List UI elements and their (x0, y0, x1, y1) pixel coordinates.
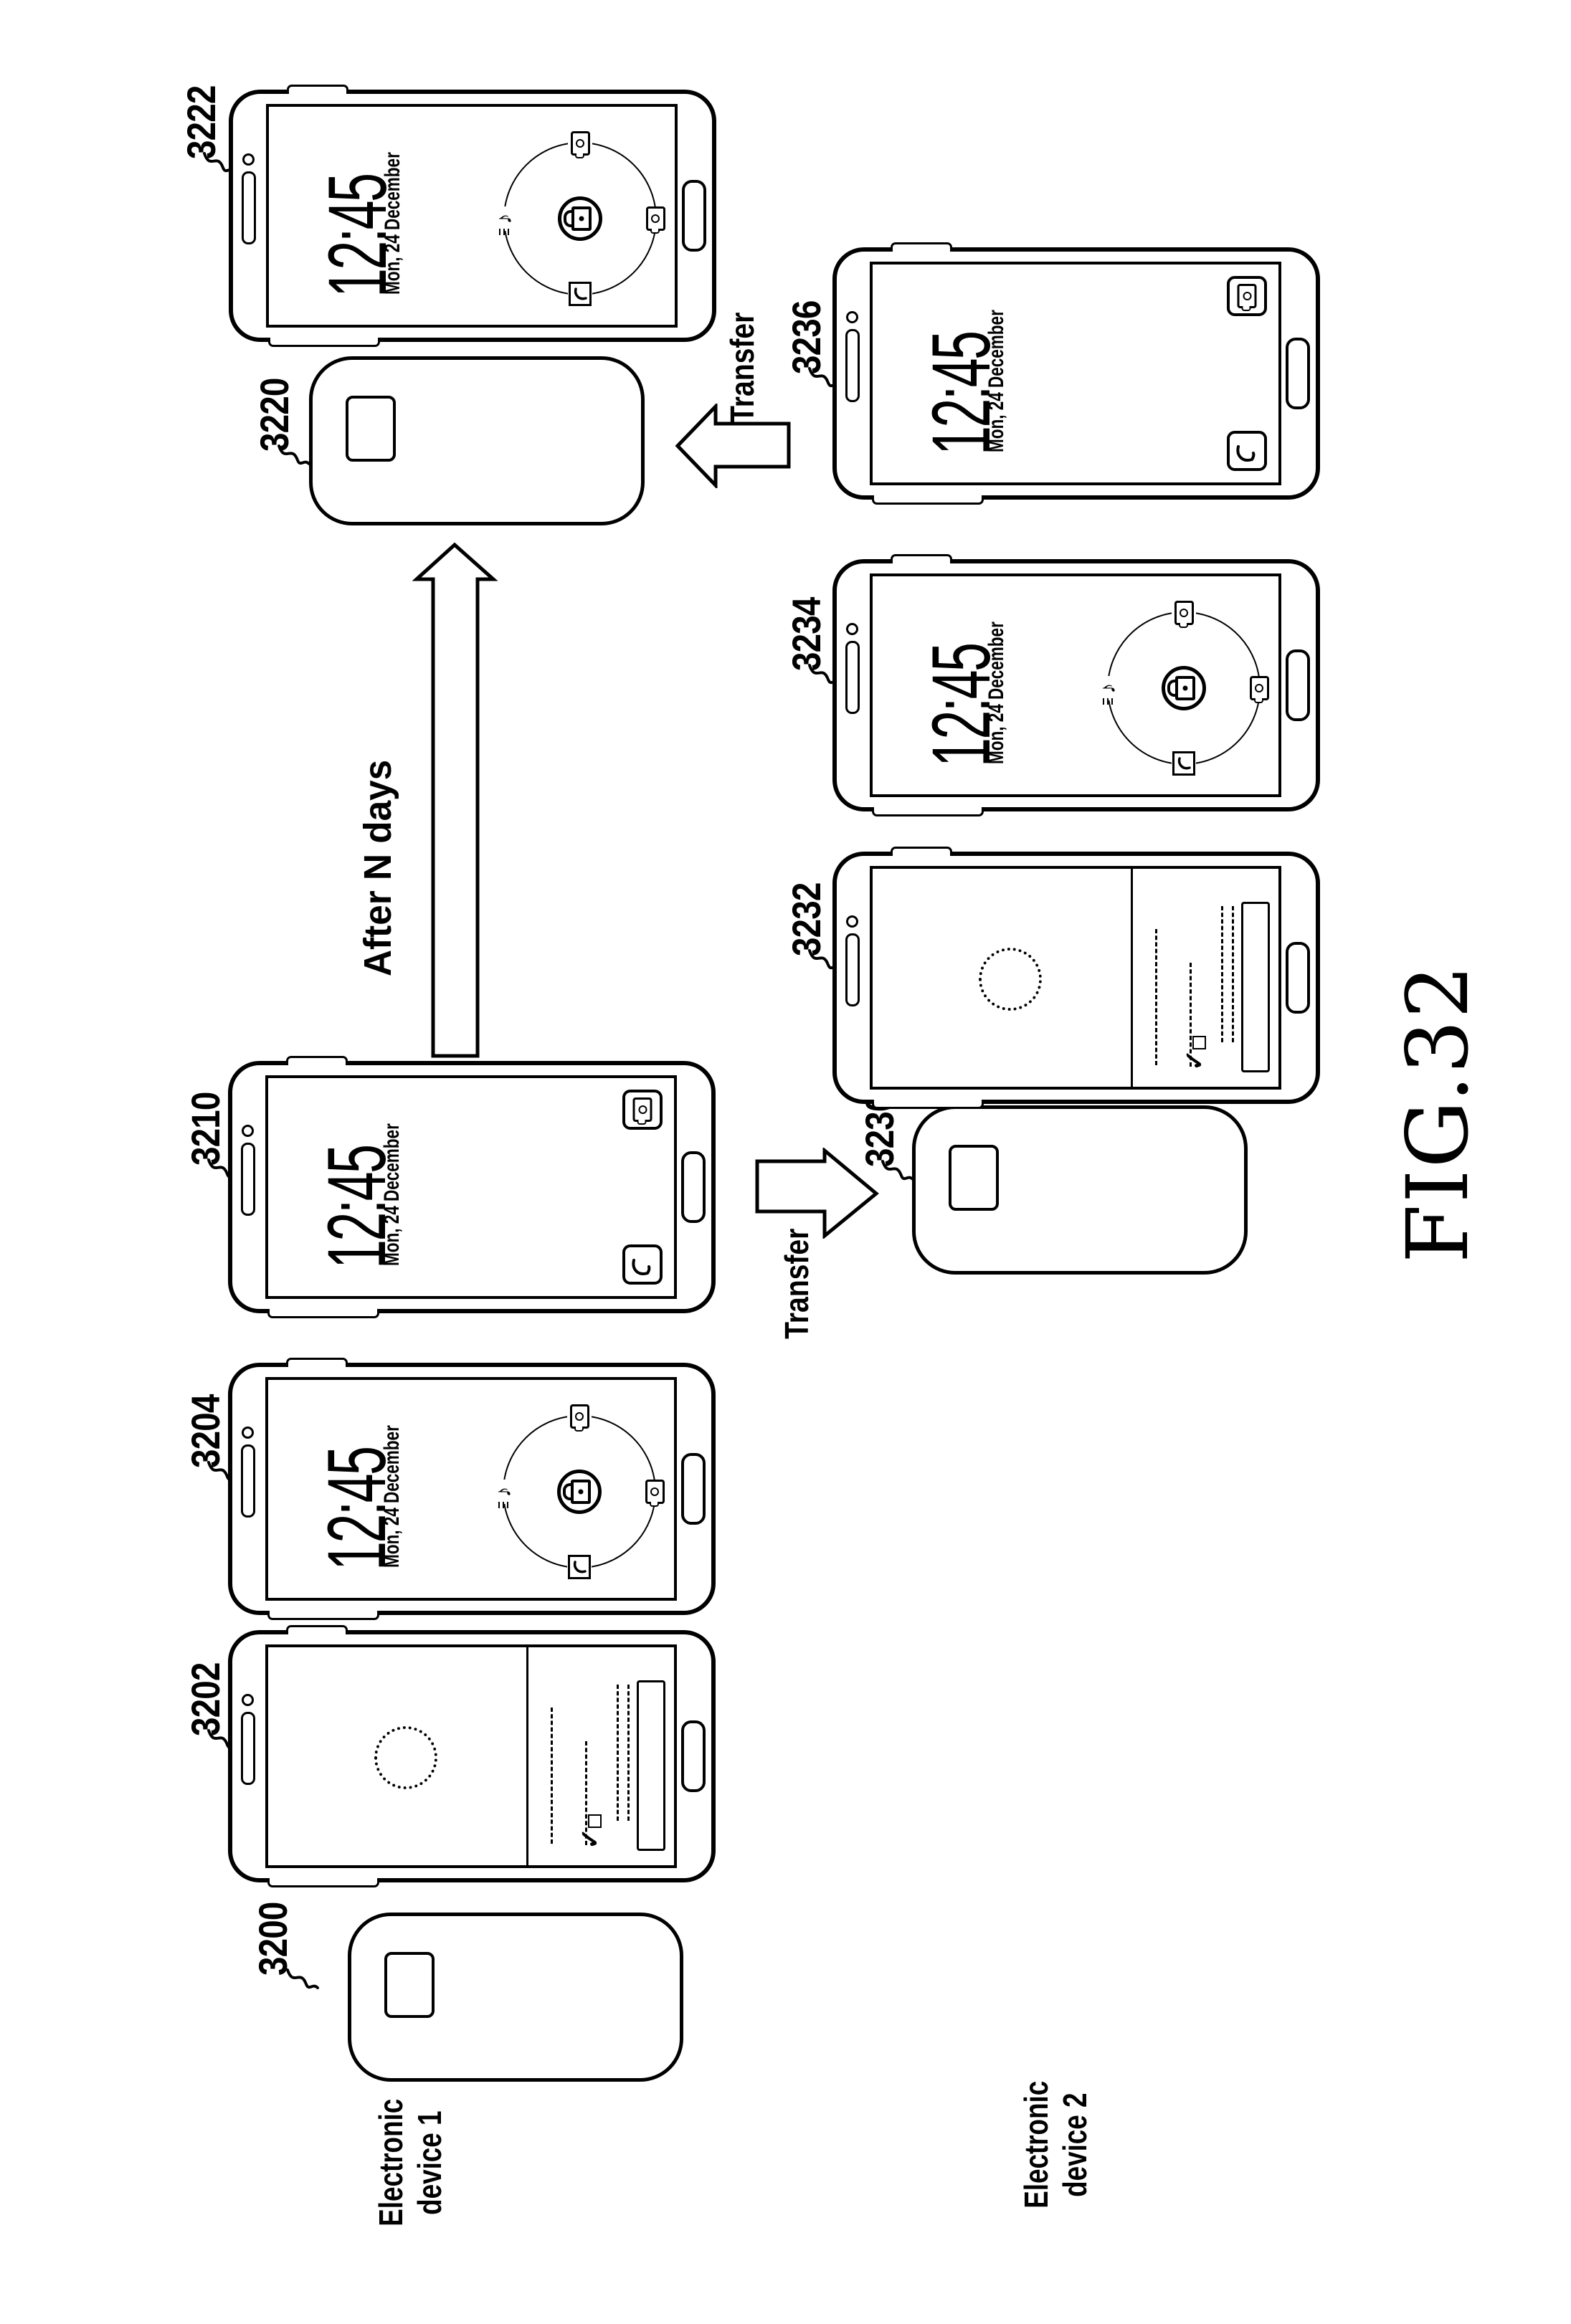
text-placeholder-line (1232, 906, 1234, 1042)
ref-label-3234: 3234 (783, 584, 830, 671)
volume-button (267, 1309, 379, 1318)
camera-shortcut-icon (622, 1090, 663, 1130)
ref-label-3202: 3202 (182, 1649, 229, 1736)
phone-shortcut-icon (1227, 431, 1267, 471)
power-button (286, 1056, 348, 1065)
unlock-circle: ♪ (503, 1415, 656, 1568)
volume-button (872, 807, 984, 816)
lock-icon (558, 196, 602, 241)
wearable-device-3200 (348, 1913, 683, 2082)
keyhole (1183, 686, 1188, 691)
wearable-device-3230 (912, 1105, 1248, 1275)
front-camera (846, 623, 858, 635)
front-camera (242, 1427, 254, 1439)
wearable-device-3220 (309, 356, 645, 525)
wearable-screen (949, 1145, 999, 1211)
camera-shortcut-icon (567, 1404, 592, 1429)
power-button (286, 1358, 348, 1367)
volume-button (872, 495, 984, 505)
clock-date: Mon, 24 December (380, 1425, 404, 1568)
lock-screen: 12:45 Mon, 24 December ♪ (870, 573, 1281, 797)
phone-3236: 12:45 Mon, 24 December (832, 247, 1320, 500)
keyhole (579, 216, 584, 222)
front-camera (242, 1694, 254, 1706)
volume-button (872, 1100, 984, 1109)
confirm-button (1241, 902, 1270, 1072)
music-shortcut-icon: ♪ (492, 1480, 516, 1504)
front-camera (242, 153, 255, 166)
volume-button (268, 338, 380, 347)
phone-3222: 12:45 Mon, 24 December ♪ (229, 90, 716, 342)
ref-label-3210: 3210 (182, 1079, 229, 1166)
figure-canvas: Electronic device 1 3200 3202 ✓ (0, 0, 1571, 2324)
phone-3204: 12:45 Mon, 24 December ♪ (228, 1363, 716, 1615)
setup-screen: ✓ (870, 866, 1281, 1090)
speaker-grille (845, 329, 860, 402)
leader-line-3230 (881, 1157, 915, 1183)
group-label-line2: device 2 (1055, 2092, 1094, 2196)
text-placeholder-line (617, 1685, 619, 1821)
phone-3202: ✓ (228, 1630, 716, 1882)
divider-line (526, 1647, 528, 1865)
clock-date: Mon, 24 December (984, 622, 1009, 764)
phone-3234: 12:45 Mon, 24 December ♪ (832, 559, 1320, 811)
group-label-line1: Electronic (1017, 2081, 1055, 2209)
wearable-screen (384, 1952, 435, 2018)
after-n-days-arrow (412, 540, 498, 1058)
home-button (682, 180, 706, 252)
front-camera (846, 915, 858, 928)
home-button (1286, 942, 1310, 1014)
speaker-grille (241, 1712, 255, 1785)
sound-waves (499, 229, 512, 235)
music-shortcut-icon: ♪ (493, 206, 517, 231)
phone-shortcut-icon (643, 206, 668, 231)
phone-shortcut-icon (622, 1244, 663, 1285)
after-n-days-label: After N days (356, 748, 400, 976)
message-shortcut-icon (1172, 751, 1196, 776)
wearable-screen (346, 396, 396, 462)
lock-body (571, 1480, 591, 1504)
home-button (681, 1720, 706, 1792)
phone-shortcut-icon (642, 1480, 667, 1504)
camera-shortcut-icon (1227, 276, 1267, 316)
group-label-device-1: Electronic device 1 (371, 2070, 449, 2256)
group-label-device-2: Electronic device 2 (1017, 2052, 1094, 2238)
speaker-grille (242, 171, 256, 244)
sound-waves (498, 1502, 511, 1508)
unlock-circle: ♪ (503, 142, 657, 295)
volume-button (267, 1878, 379, 1887)
message-shortcut-icon (567, 1555, 592, 1579)
divider-line (1131, 869, 1133, 1087)
setup-screen: ✓ (265, 1644, 677, 1868)
lock-screen: 12:45 Mon, 24 December ♪ (265, 1377, 677, 1601)
front-camera (846, 311, 858, 323)
text-placeholder-line (627, 1685, 630, 1821)
ref-label-3220: 3220 (251, 365, 298, 452)
keyhole (579, 1490, 584, 1495)
ref-label-3236: 3236 (783, 287, 830, 374)
power-button (891, 242, 952, 252)
loading-spinner (979, 948, 1042, 1011)
lock-body (571, 206, 592, 231)
speaker-grille (845, 641, 860, 714)
lock-icon (557, 1470, 602, 1514)
ref-label-3200: 3200 (250, 1889, 296, 1976)
power-button (891, 847, 952, 856)
text-placeholder-line (1155, 929, 1157, 1065)
home-button (1286, 649, 1310, 721)
phone-3232: ✓ (832, 852, 1320, 1104)
text-placeholder-line (551, 1708, 553, 1844)
speaker-grille (241, 1143, 255, 1216)
camera-shortcut-icon (1172, 601, 1196, 625)
checkbox (1192, 1036, 1206, 1049)
leader-line-3200 (285, 1966, 320, 1991)
checkmark: ✓ (1180, 1049, 1210, 1071)
text-placeholder-line (1221, 906, 1223, 1042)
home-button (681, 1453, 706, 1525)
ref-label-3232: 3232 (783, 870, 830, 956)
speaker-grille (845, 933, 860, 1006)
confirm-button (637, 1680, 665, 1851)
lock-screen: 12:45 Mon, 24 December (870, 262, 1281, 485)
sound-waves (1103, 698, 1116, 705)
phone-3210: 12:45 Mon, 24 December (228, 1061, 716, 1313)
message-shortcut-icon (568, 282, 592, 306)
home-button (1286, 338, 1310, 409)
lock-body (1175, 676, 1195, 700)
home-button (681, 1151, 706, 1223)
clock-date: Mon, 24 December (380, 1123, 404, 1266)
lock-icon (1162, 666, 1206, 710)
power-button (891, 554, 952, 563)
lock-screen: 12:45 Mon, 24 December (265, 1075, 677, 1299)
volume-button (267, 1611, 379, 1620)
group-label-line2: device 1 (410, 2110, 449, 2214)
checkbox (588, 1814, 602, 1828)
camera-shortcut-icon (568, 131, 592, 156)
loading-spinner (374, 1726, 437, 1789)
clock-date: Mon, 24 December (381, 152, 405, 295)
unlock-circle: ♪ (1107, 611, 1261, 765)
phone-shortcut-icon (1247, 676, 1271, 700)
music-shortcut-icon: ♪ (1096, 676, 1121, 700)
ref-label-3204: 3204 (182, 1381, 229, 1468)
lock-screen: 12:45 Mon, 24 December ♪ (266, 104, 678, 328)
figure-title: FIG.32 (1388, 963, 1487, 1263)
group-label-line1: Electronic (371, 2099, 410, 2227)
front-camera (242, 1125, 254, 1137)
checkmark: ✓ (575, 1828, 605, 1849)
clock-date: Mon, 24 December (984, 310, 1009, 452)
leader-line-3220 (277, 442, 311, 467)
speaker-grille (241, 1444, 255, 1518)
power-button (286, 1625, 348, 1634)
transfer-up-label: Transfer (723, 292, 761, 423)
ref-label-3222: 3222 (178, 72, 224, 159)
power-button (287, 85, 348, 94)
patent-page: { "figure": { "title": "FIG.32" }, "lock… (0, 0, 1571, 2324)
